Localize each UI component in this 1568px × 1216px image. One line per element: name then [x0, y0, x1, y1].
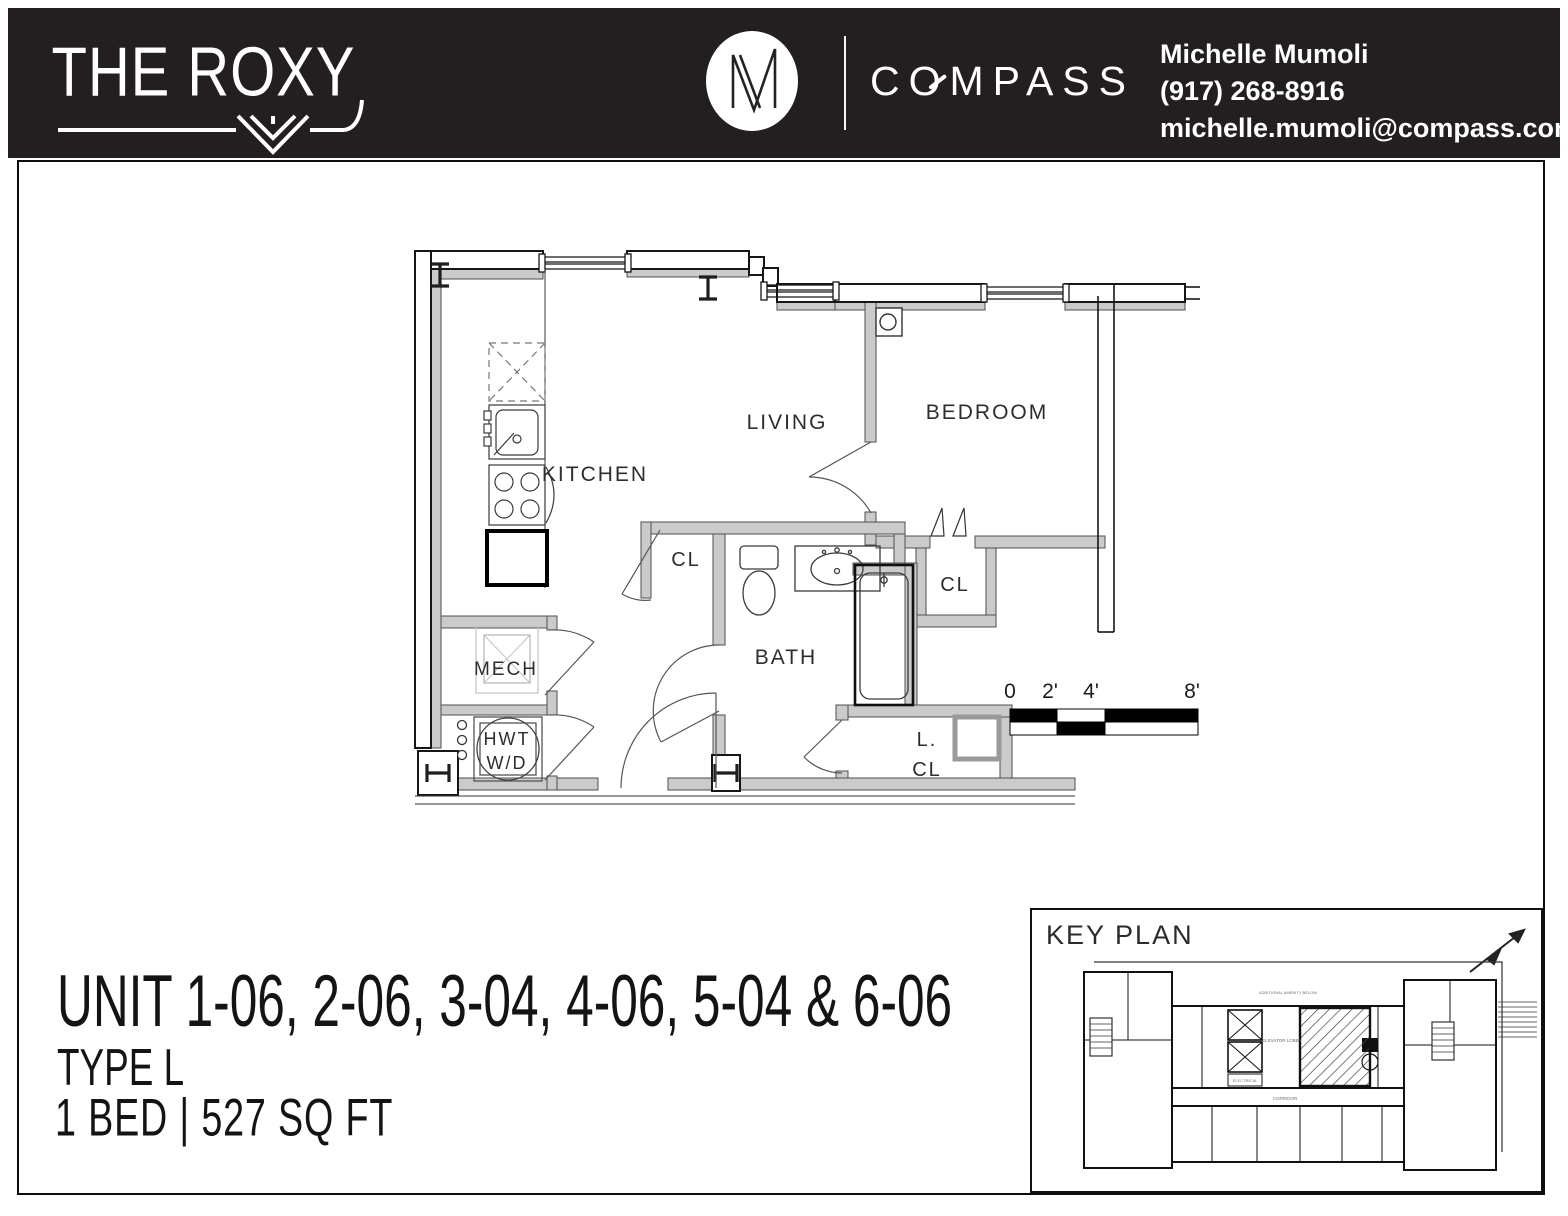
- compass-text: COMPASS: [870, 58, 1135, 105]
- kp-amenity-note: ADDITIONAL AMENITY BELOW: [1259, 990, 1317, 995]
- shaft-box: [955, 717, 999, 759]
- roxy-logo: THE ROXY: [48, 18, 368, 156]
- kitchen-sink: [484, 405, 545, 459]
- compass-monogram: [702, 28, 802, 134]
- party-walls: [1098, 284, 1200, 632]
- key-plan-building: [1084, 972, 1496, 1170]
- header-bar: THE ROXY COMPASS: [8, 8, 1560, 158]
- scale-bar: 0 2' 4' 8': [1004, 680, 1200, 735]
- upper-cabinets-dashed: [489, 343, 545, 401]
- door-bedroom: [809, 442, 871, 513]
- compass-wordmark: COMPASS: [870, 58, 1135, 105]
- label-mech: MECH: [474, 659, 538, 680]
- agent-name: Michelle Mumoli: [1160, 36, 1568, 73]
- doors: [545, 442, 871, 788]
- corridor-lines: [415, 796, 1075, 804]
- window-bedroom: [981, 284, 1069, 302]
- plumbing-risers: [458, 721, 467, 760]
- key-plan-unit-highlight: [1300, 1008, 1370, 1086]
- scale-2: 2': [1042, 680, 1058, 703]
- brand-divider: [844, 36, 846, 130]
- label-lcl-1: L.: [917, 729, 938, 751]
- unit-title: UNIT 1-06, 2-06, 3-04, 4-06, 5-04 & 6-06: [57, 960, 952, 1044]
- label-bath: BATH: [755, 646, 817, 669]
- label-wd: W/D: [487, 753, 528, 773]
- door-mech: [545, 630, 594, 695]
- label-bedroom: BEDROOM: [926, 401, 1049, 424]
- label-kitchen: KITCHEN: [542, 463, 648, 486]
- monogram-circle: [706, 31, 798, 131]
- scale-0: 0: [1004, 680, 1016, 703]
- flyer-page: THE ROXY COMPASS: [0, 0, 1568, 1216]
- floor-plan: KITCHEN LIVING BEDROOM BATH MECH HWT W/D…: [410, 243, 1210, 843]
- label-lcl-2: CL: [912, 759, 942, 781]
- toilet: [740, 546, 778, 615]
- bed-sqft-label: 1 BED | 527 SQ FT: [55, 1086, 393, 1148]
- key-plan-svg: KEY PLAN: [1032, 910, 1541, 1191]
- door-linen-closet: [804, 720, 842, 773]
- label-hwt: HWT: [484, 729, 531, 749]
- kp-electrical: ELECTRICAL: [1233, 1078, 1258, 1083]
- roxy-logo-text: THE ROXY: [52, 33, 356, 111]
- key-plan-box: KEY PLAN: [1030, 908, 1543, 1193]
- kitchen-fixtures: [484, 269, 554, 588]
- bathtub: [855, 565, 913, 705]
- north-arrow-icon: [1470, 930, 1524, 972]
- scale-8: 8': [1184, 680, 1200, 703]
- room-labels: KITCHEN LIVING BEDROOM BATH MECH HWT W/D…: [474, 401, 1048, 781]
- key-plan-title: KEY PLAN: [1046, 920, 1194, 950]
- door-laundry: [545, 715, 594, 780]
- label-cl-hall: CL: [671, 549, 701, 571]
- window-kitchen: [539, 254, 631, 272]
- kp-elevator-lobby: ELEVATOR LOBBY: [1262, 1038, 1302, 1043]
- label-cl-bed: CL: [940, 574, 970, 596]
- kp-corridor: CORRIDOR: [1273, 1096, 1298, 1101]
- refrigerator: [487, 531, 547, 585]
- bifold-door: [931, 508, 966, 536]
- door-entry: [621, 693, 716, 788]
- scale-4: 4': [1083, 680, 1099, 703]
- label-living: LIVING: [747, 411, 828, 434]
- agent-contact-block: Michelle Mumoli (917) 268-8916 michelle.…: [1160, 36, 1568, 147]
- agent-email: michelle.mumoli@compass.com: [1160, 110, 1568, 147]
- agent-phone: (917) 268-8916: [1160, 73, 1568, 110]
